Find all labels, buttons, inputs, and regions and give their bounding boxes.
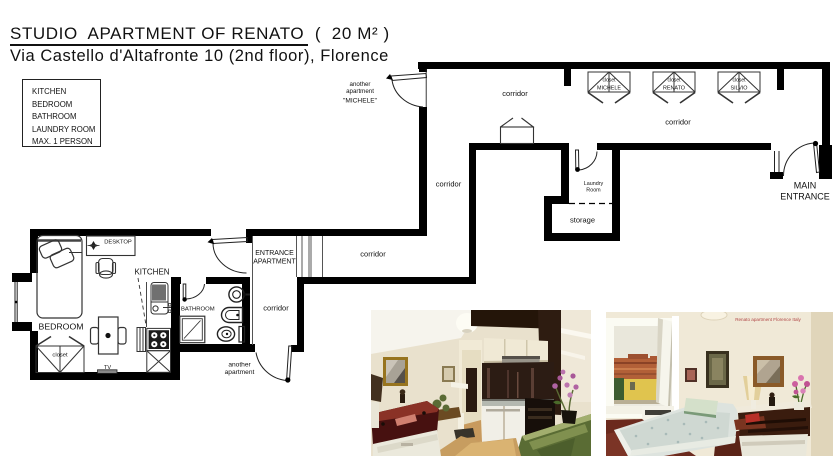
svg-text:MICHELE: MICHELE [597, 86, 621, 92]
svg-text:Laundry: Laundry [584, 181, 604, 187]
svg-text:another: another [350, 81, 371, 88]
svg-text:ENTRANCE: ENTRANCE [780, 192, 830, 202]
svg-text:corridor: corridor [360, 250, 386, 259]
svg-text:Room: Room [586, 188, 601, 194]
svg-text:MAIN: MAIN [794, 181, 817, 191]
svg-text:storage: storage [570, 216, 595, 225]
svg-text:corridor: corridor [665, 118, 691, 127]
svg-text:closet: closet [732, 78, 746, 84]
svg-text:another: another [228, 362, 251, 369]
svg-text:closet: closet [667, 78, 681, 84]
svg-text:APARTMENT: APARTMENT [253, 259, 296, 266]
svg-text:KITCHEN: KITCHEN [134, 268, 169, 277]
svg-text:"MICHELE": "MICHELE" [343, 98, 378, 105]
svg-text:Renato apartment Florence Ital: Renato apartment Florence Italy [735, 317, 801, 322]
svg-text:corridor: corridor [436, 180, 462, 189]
svg-text:closet: closet [602, 78, 616, 84]
svg-text:ENTRANCE: ENTRANCE [255, 250, 294, 257]
svg-text:SILVIO: SILVIO [731, 86, 748, 92]
svg-text:closet: closet [52, 353, 68, 359]
svg-text:apartment: apartment [225, 369, 255, 376]
svg-text:corridor: corridor [502, 89, 528, 98]
svg-text:BEDROOM: BEDROOM [39, 322, 84, 332]
svg-text:corridor: corridor [263, 304, 289, 313]
svg-text:BATHROOM: BATHROOM [181, 307, 215, 313]
svg-text:RENATO: RENATO [663, 86, 685, 92]
svg-text:apartment: apartment [346, 88, 374, 95]
svg-text:DESKTOP: DESKTOP [104, 240, 132, 246]
